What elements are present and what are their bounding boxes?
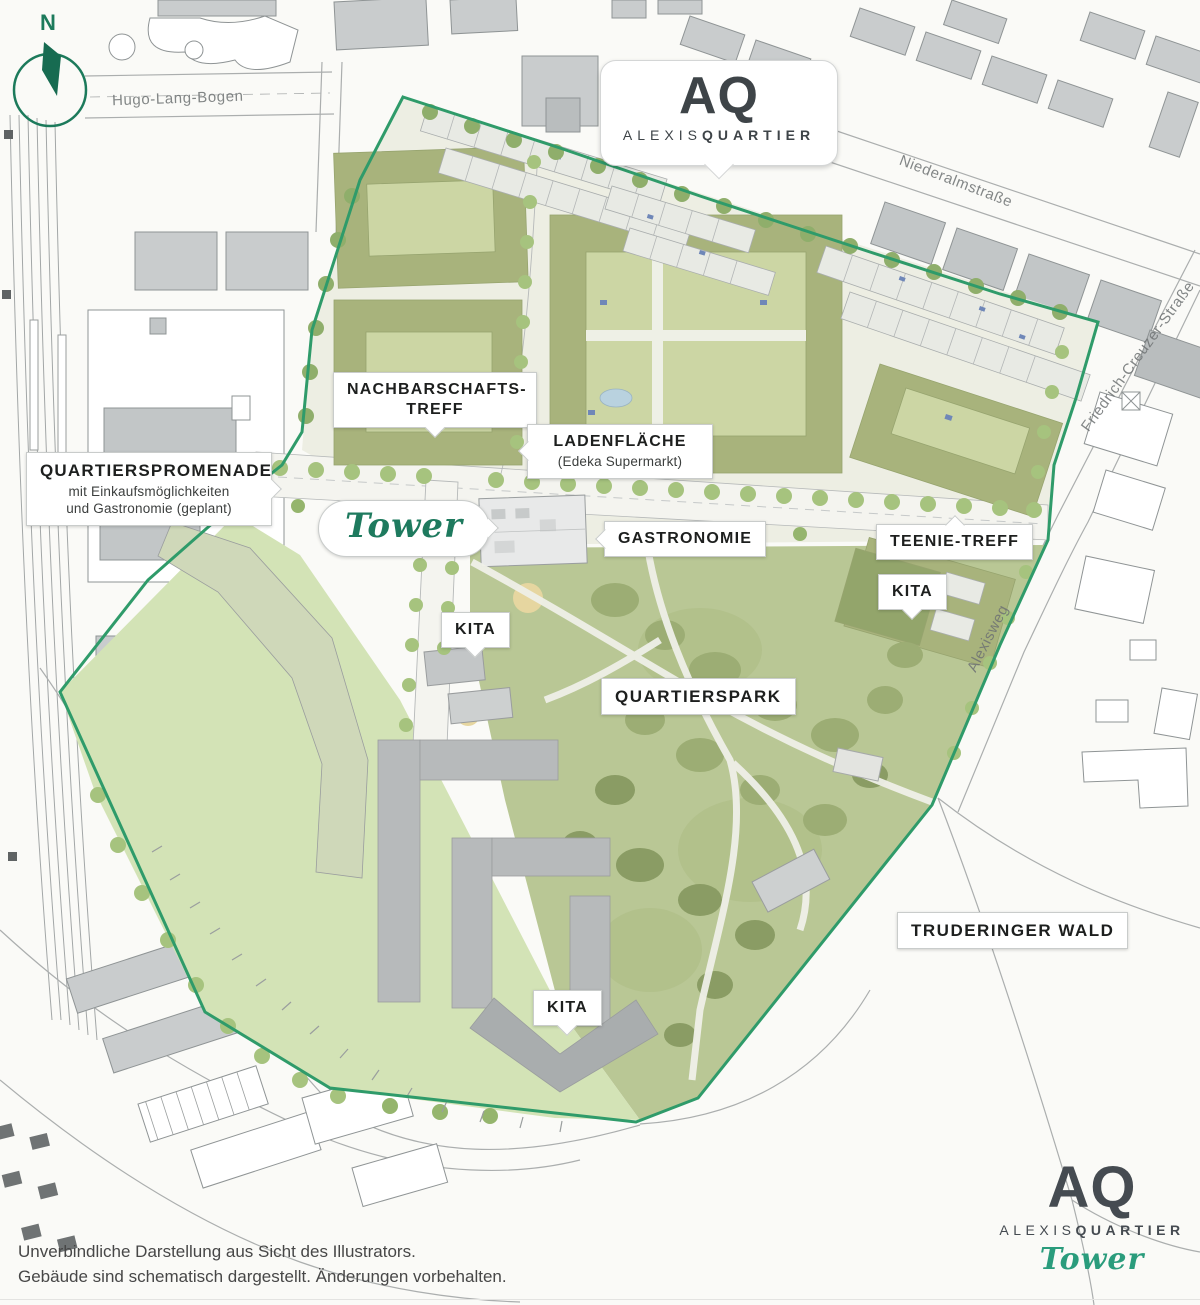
site-plan-canvas: N Hugo-Lang-Bogen Niederalmstraße Friedr… [0,0,1200,1305]
aq-monogram-bottom: AQ [992,1158,1192,1219]
aq-monogram: AQ [601,69,837,124]
site-plan-illustration [0,0,1200,1305]
tower-script-label: Tower [345,506,463,546]
compass-needle [42,42,61,96]
alexisquartier-wordmark: ALEXISQUARTIER [601,127,837,143]
disclaimer-line2: Gebäude sind schematisch dargestellt. Än… [18,1265,507,1290]
callout-ladenflaeche: LADENFLÄCHE (Edeka Supermarkt) [527,424,713,479]
alexisquartier-logo-bubble: AQ ALEXISQUARTIER [600,60,838,166]
callout-quartierspark: QUARTIERSPARK [601,678,796,715]
north-compass: N [8,4,108,134]
callout-nachbarschaftstreff: NACHBARSCHAFTS-TREFF [333,372,537,428]
wordmark-alexis: ALEXIS [623,127,702,143]
callout-truderinger-wald: TRUDERINGER WALD [897,912,1128,949]
quartierspromenade-line2: mit Einkaufsmöglichkeiten [40,484,258,501]
callout-tower: Tower [318,500,490,557]
tower-script-bottom: Tower [992,1242,1192,1277]
disclaimer-line1: Unverbindliche Darstellung aus Sicht des… [18,1240,507,1265]
footer-divider [0,1299,1200,1300]
wordmark-alexis-bottom: ALEXIS [999,1222,1075,1238]
callout-gastronomie: GASTRONOMIE [604,521,766,557]
quartierspromenade-title: QUARTIERSPROMENADE [40,461,272,480]
disclaimer-text: Unverbindliche Darstellung aus Sicht des… [18,1240,507,1289]
wordmark-quartier: QUARTIER [702,127,815,143]
callout-kita-right: KITA [878,574,947,610]
callout-kita-south: KITA [533,990,602,1026]
callout-teenie-treff: TEENIE-TREFF [876,524,1033,560]
ladenflaeche-title: LADENFLÄCHE [553,433,686,450]
quartierspromenade-line3: und Gastronomie (geplant) [40,501,258,518]
compass-n-label: N [40,10,56,35]
alexisquartier-wordmark-bottom: ALEXISQUARTIER [992,1222,1192,1238]
ladenflaeche-sub: (Edeka Supermarkt) [541,454,699,471]
alexisquartier-tower-logo: AQ ALEXISQUARTIER Tower [992,1158,1192,1277]
callout-quartierspromenade: QUARTIERSPROMENADE mit Einkaufsmöglichke… [26,452,272,526]
wordmark-quartier-bottom: QUARTIER [1075,1222,1184,1238]
callout-kita-center: KITA [441,612,510,648]
